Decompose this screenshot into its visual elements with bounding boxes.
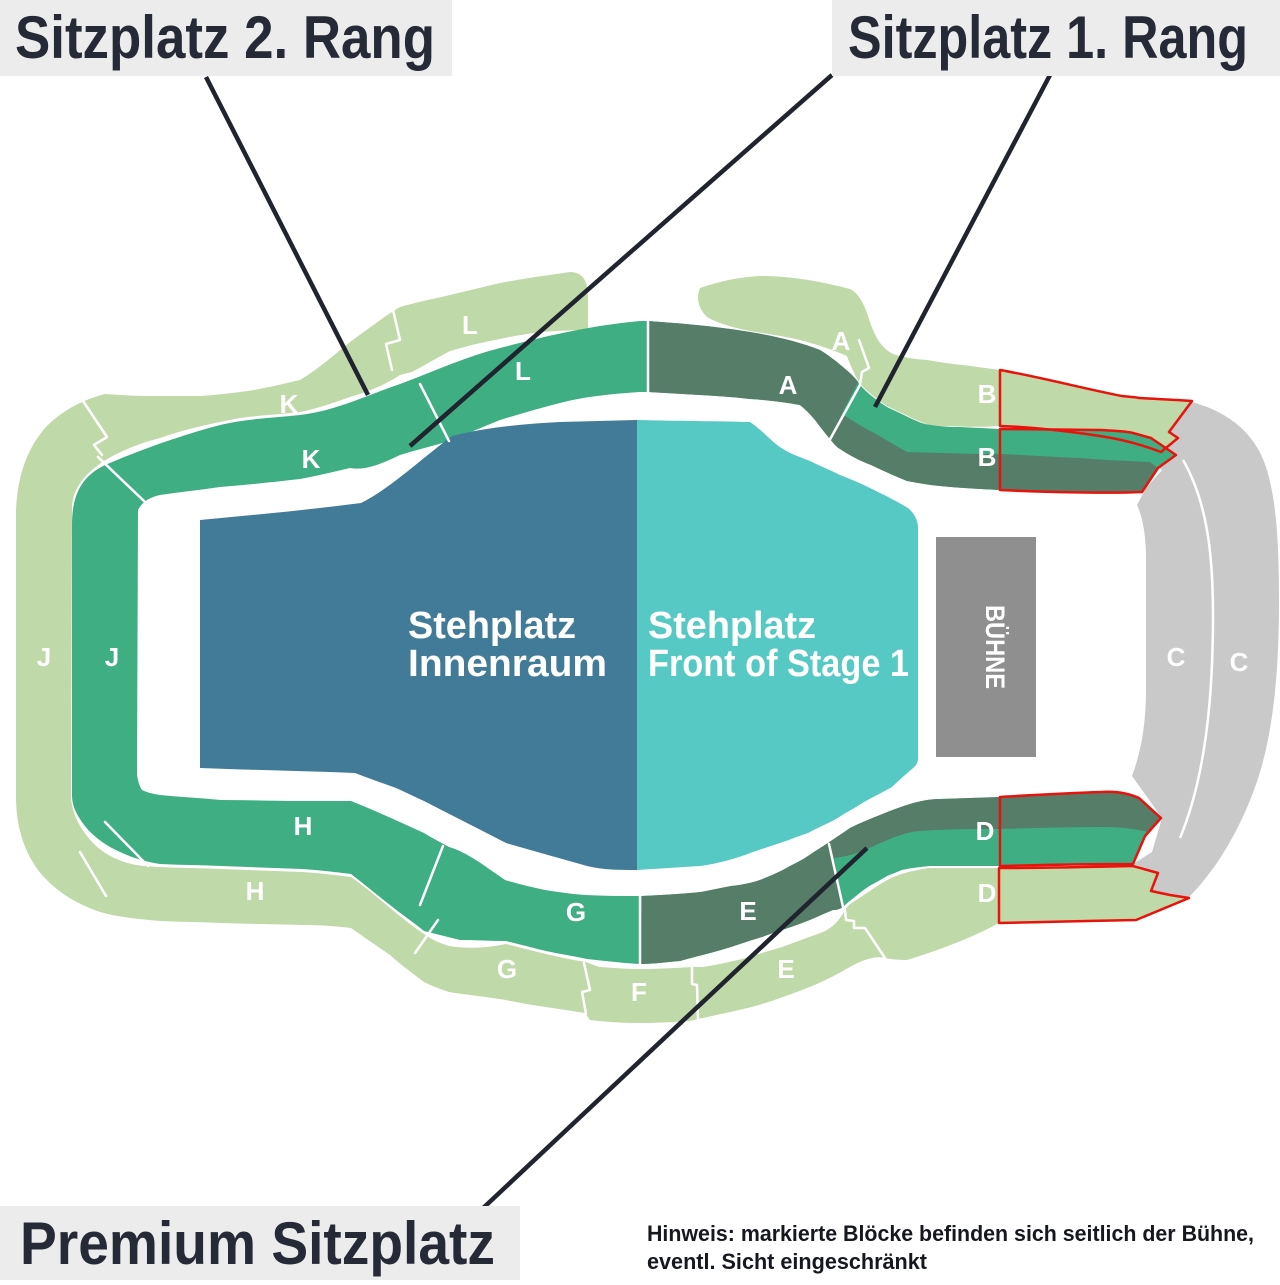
- svg-text:Sitzplatz 2. Rang: Sitzplatz 2. Rang: [15, 4, 435, 71]
- svg-text:L: L: [515, 356, 531, 386]
- svg-text:Front of Stage 1: Front of Stage 1: [648, 643, 909, 685]
- svg-text:Hinweis: markierte Blöcke befi: Hinweis: markierte Blöcke befinden sich …: [647, 1221, 1254, 1246]
- svg-text:Innenraum: Innenraum: [408, 643, 607, 685]
- svg-text:L: L: [462, 310, 478, 340]
- svg-text:J: J: [105, 642, 119, 672]
- svg-text:Premium Sitzplatz: Premium Sitzplatz: [20, 1210, 495, 1277]
- svg-text:eventl. Sicht eingeschränkt: eventl. Sicht eingeschränkt: [647, 1249, 928, 1274]
- svg-text:B: B: [978, 379, 997, 409]
- svg-text:G: G: [566, 897, 586, 927]
- svg-text:H: H: [246, 876, 265, 906]
- svg-text:A: A: [779, 370, 798, 400]
- svg-text:B: B: [978, 442, 997, 472]
- svg-text:C: C: [1167, 642, 1186, 672]
- svg-text:G: G: [497, 954, 517, 984]
- svg-text:H: H: [294, 811, 313, 841]
- svg-text:BÜHNE: BÜHNE: [980, 605, 1010, 689]
- svg-text:A: A: [832, 326, 851, 356]
- svg-text:K: K: [280, 389, 299, 419]
- svg-text:E: E: [739, 896, 756, 926]
- svg-text:J: J: [37, 642, 51, 672]
- svg-text:C: C: [1230, 647, 1249, 677]
- svg-text:F: F: [631, 977, 647, 1007]
- svg-text:Sitzplatz 1. Rang: Sitzplatz 1. Rang: [848, 4, 1248, 71]
- svg-text:Stehplatz: Stehplatz: [648, 605, 816, 647]
- svg-text:K: K: [302, 444, 321, 474]
- svg-text:D: D: [978, 878, 997, 908]
- svg-text:Stehplatz: Stehplatz: [408, 605, 576, 647]
- svg-text:D: D: [976, 816, 995, 846]
- svg-text:E: E: [777, 954, 794, 984]
